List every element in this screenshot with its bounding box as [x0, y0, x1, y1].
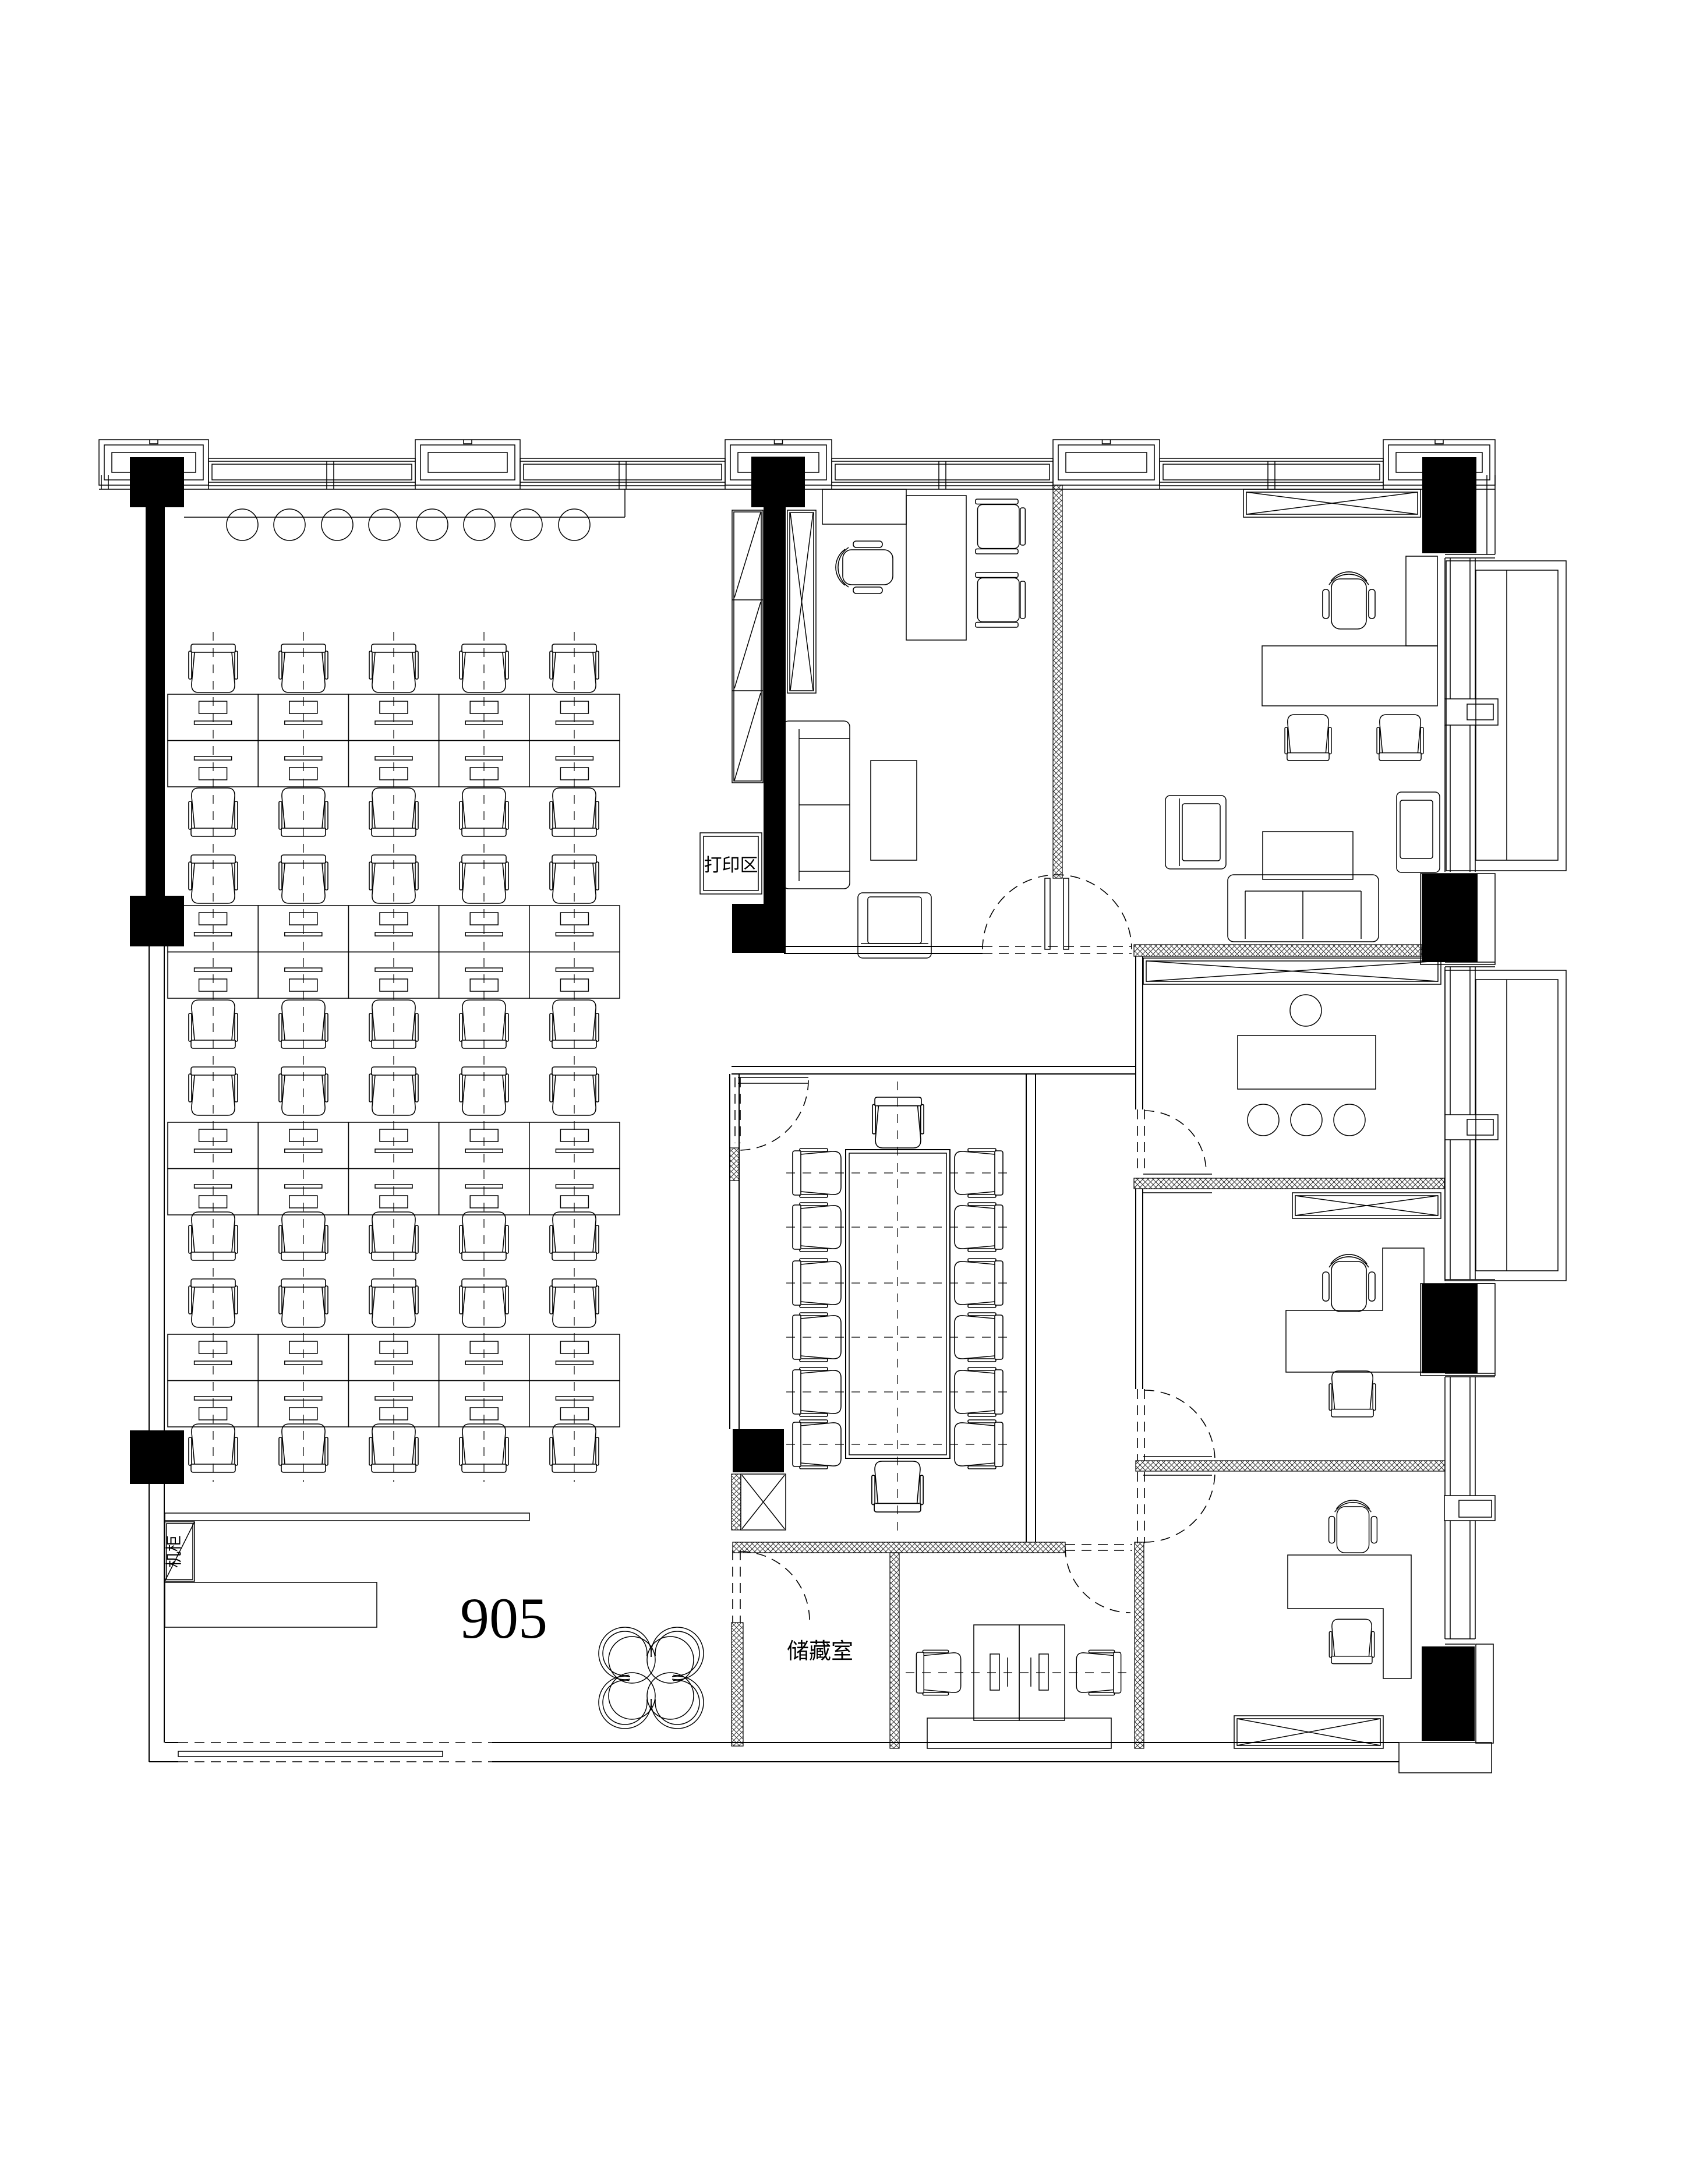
- svg-text:储藏室: 储藏室: [787, 1639, 853, 1664]
- svg-text:905: 905: [460, 1586, 547, 1651]
- svg-text:打印区: 打印区: [704, 855, 758, 875]
- svg-text:机柜: 机柜: [165, 1535, 183, 1568]
